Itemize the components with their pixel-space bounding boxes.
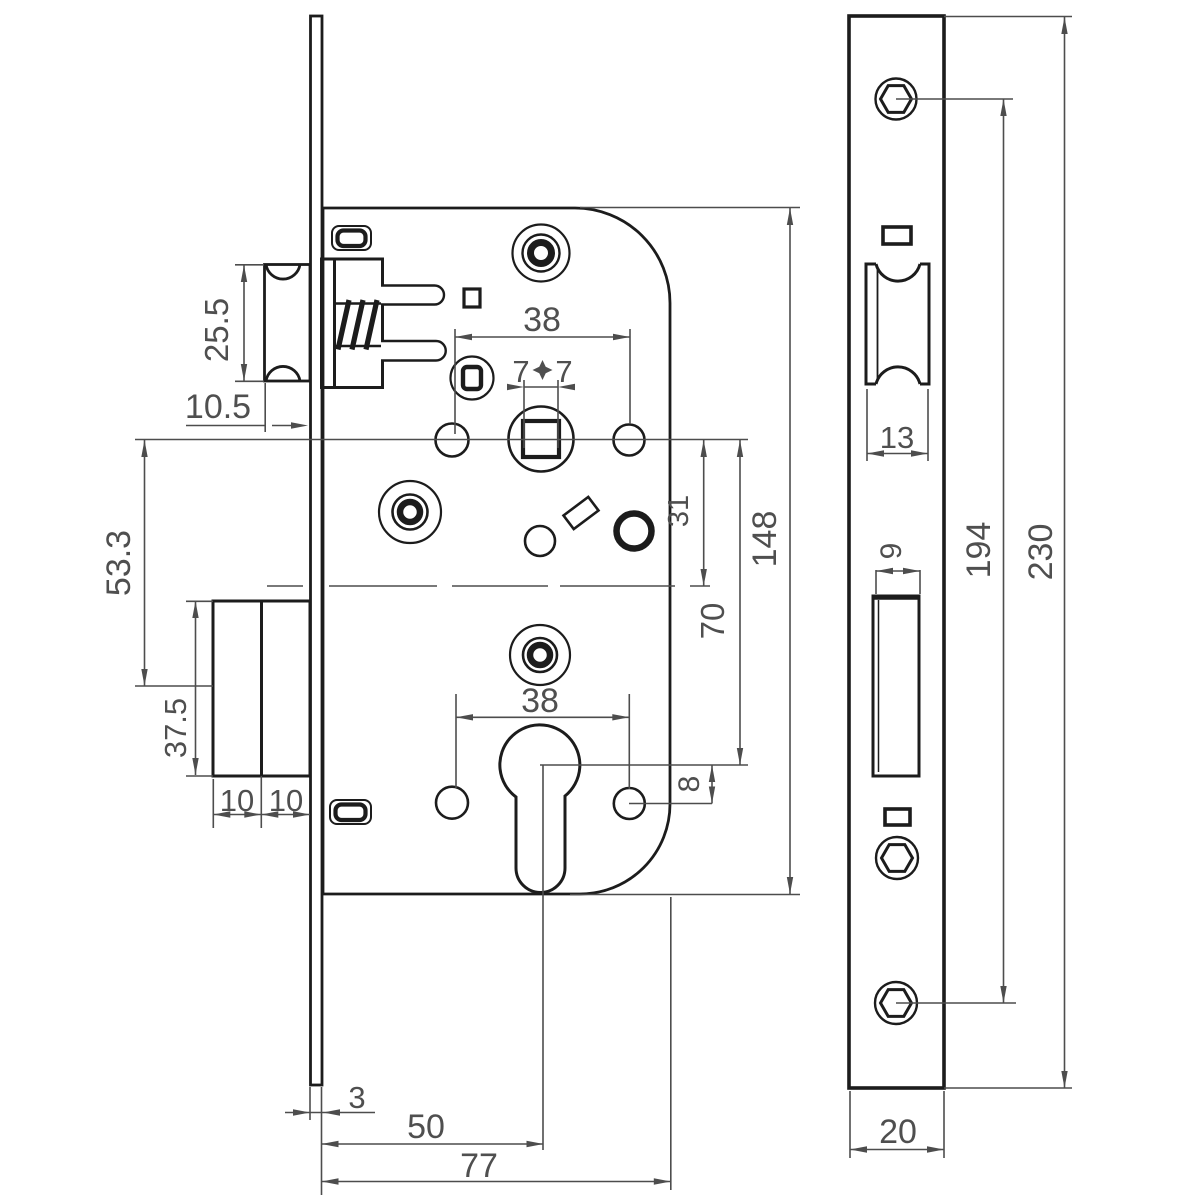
svg-text:10: 10 [269,783,303,818]
svg-text:148: 148 [746,511,784,568]
svg-text:3: 3 [348,1080,365,1115]
svg-text:50: 50 [407,1108,445,1146]
svg-text:9: 9 [875,543,908,560]
svg-text:38: 38 [521,682,559,720]
svg-text:230: 230 [1022,524,1060,581]
svg-text:77: 77 [460,1147,498,1185]
svg-text:194: 194 [960,522,998,579]
svg-text:10.5: 10.5 [185,388,251,426]
svg-text:7: 7 [555,354,572,389]
svg-text:7: 7 [512,354,529,389]
svg-text:13: 13 [880,420,914,455]
svg-text:53.3: 53.3 [100,530,138,596]
svg-text:8: 8 [673,776,706,793]
svg-text:37.5: 37.5 [158,698,193,758]
svg-text:70: 70 [694,603,731,640]
svg-text:31: 31 [663,495,695,527]
svg-text:10: 10 [220,783,254,818]
svg-text:20: 20 [879,1113,917,1151]
svg-text:38: 38 [523,301,561,339]
svg-text:25.5: 25.5 [198,298,235,362]
